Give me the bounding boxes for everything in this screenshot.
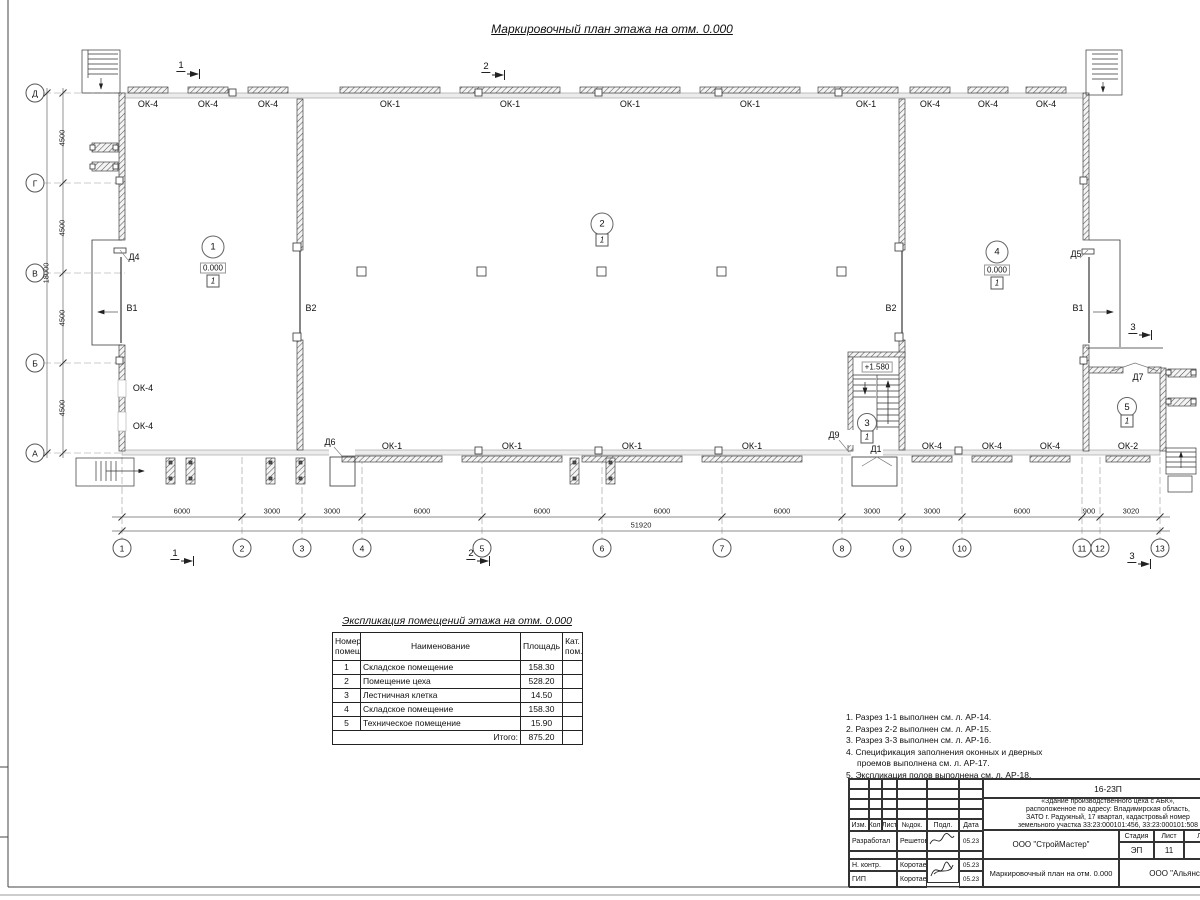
note-item: 2. Разрез 2-2 выполнен см. л. АР-15. [846,724,1076,736]
section-mark-1-top: 1 [176,60,185,72]
tb-name: Решетова [897,831,927,851]
notes-list: 1. Разрез 1-1 выполнен см. л. АР-14. 2. … [846,712,1076,781]
tb-project-description: «Здание производственного цеха с АБК», р… [983,798,1200,830]
axis-bubble-h-2: 2 [233,539,252,558]
door-label-d7: Д7 [1132,372,1143,382]
window-label: ОК-4 [133,383,153,393]
note-item: 3. Разрез 3-3 выполнен см. л. АР-16. [846,735,1076,747]
dim-text: 6000 [174,507,191,516]
note-item: 1. Разрез 1-1 выполнен см. л. АР-14. [846,712,1076,724]
axis-bubble-h-12: 12 [1091,539,1110,558]
room-num: 4 [333,703,361,717]
room-4-elevation: 0.000 [984,265,1010,276]
axis-lines [44,93,1160,540]
window-label: ОК-4 [138,99,158,109]
room-area: 158.30 [521,661,563,675]
section-mark-3-top: 3 [1128,322,1137,334]
door-label-d4: Д4 [128,252,139,262]
tb-sheet-label: Лист [1154,830,1184,842]
room-1-elevation: 0.000 [200,263,226,274]
window-label: ОК-1 [380,99,400,109]
note-item: 4. Спецификация заполнения оконных и две… [846,747,1076,770]
room-2-number: 2 [591,213,614,236]
axis-bubble-h-5: 5 [473,539,492,558]
table-row: 3 Лестничная клетка 14.50 [333,689,583,703]
section-mark-3-bottom: 3 [1127,551,1136,563]
tb-drawing-title: Маркировочный план на отм. 0.000 [983,859,1119,888]
tb-stage-label: Стадия [1119,830,1154,842]
tb-col-izm: Изм. [849,819,869,831]
tb-stage-value: ЭП [1119,842,1154,859]
tb-role: Разработал [849,831,897,851]
window-label: ОК-1 [500,99,520,109]
room-area: 158.30 [521,703,563,717]
room-name: Складское помещение [361,661,521,675]
tb-name: Коротаев [897,871,927,888]
tb-name: Коротаев [897,859,927,871]
door-label-d9: Д9 [828,430,839,440]
tb-sheets-value: 1 [1184,842,1200,859]
room-cat [563,675,583,689]
total-area: 875.20 [521,731,563,745]
tb-date: 05.23 [959,871,983,888]
dim-text: 4500 [58,310,67,327]
door-label-d6: Д6 [324,437,335,447]
window-label: ОК-1 [382,441,402,451]
room-name: Складское помещение [361,703,521,717]
tb-signature [927,859,959,883]
window-label: ОК-4 [978,99,998,109]
window-label: ОК-2 [1118,441,1138,451]
room-num: 2 [333,675,361,689]
room-schedule: Экспликация помещений этажа на отм. 0.00… [332,615,582,745]
axis-bubble-h-6: 6 [593,539,612,558]
tb-col-data: Дата [959,819,983,831]
dim-text: 3000 [324,507,341,516]
window-label: ОК-4 [198,99,218,109]
table-row: 2 Помещение цеха 528.20 [333,675,583,689]
columns [90,89,1196,480]
dim-text: 6000 [534,507,551,516]
col-header-number: Номер помещ. [333,633,361,661]
room-area: 14.50 [521,689,563,703]
window-label: ОК-1 [502,441,522,451]
title-block: Изм. Кол. Лист №док. Подл. Дата Разработ… [848,778,1200,887]
table-row: 4 Складское помещение 158.30 [333,703,583,717]
window-label: ОК-1 [620,99,640,109]
tb-date: 05.23 [959,859,983,871]
door-label-d5: Д5 [1070,249,1081,259]
section-mark-1-bottom: 1 [170,548,179,560]
room-4-floor-type: 1 [991,277,1004,290]
tb-sheets-label: Листов [1184,830,1200,842]
tb-role: Н. контр. [849,859,897,871]
door-label-d1: Д1 [870,444,881,454]
section-arrows [181,69,1152,569]
dim-text: 4500 [58,130,67,147]
dim-text: 6000 [1014,507,1031,516]
axis-bubble-v-d: Д [26,84,45,103]
walls-hatched [92,87,1196,484]
col-header-area: Площадь [521,633,563,661]
window-label: ОК-1 [742,441,762,451]
window-label: ОК-4 [1036,99,1056,109]
room-name: Лестничная клетка [361,689,521,703]
window-label: ОК-1 [622,441,642,451]
tb-client: ООО "Альянс" [1119,859,1200,888]
total-label: Итого: [333,731,521,745]
tb-col-list: Лист [882,819,897,831]
section-mark-2-top: 2 [481,61,490,73]
room-schedule-title: Экспликация помещений этажа на отм. 0.00… [332,615,582,627]
table-row: 1 Складское помещение 158.30 [333,661,583,675]
window-label: ОК-4 [258,99,278,109]
axis-bubble-h-9: 9 [893,539,912,558]
axis-bubble-h-8: 8 [833,539,852,558]
dim-text: 6000 [654,507,671,516]
table-row: 5 Техническое помещение 15.90 [333,717,583,731]
window-label: ОК-1 [740,99,760,109]
dim-total-width: 51920 [631,521,652,530]
stair-landing-elevation: +1.580 [862,362,893,373]
room-2-floor-type: 1 [596,234,609,247]
dim-text: 6000 [774,507,791,516]
col-header-category: Кат. пом. [563,633,583,661]
gate-label-b2-right: В2 [885,303,896,313]
axis-bubble-h-7: 7 [713,539,732,558]
axis-bubble-h-3: 3 [293,539,312,558]
tb-role: ГИП [849,871,897,888]
room-num: 3 [333,689,361,703]
drawing-sheet: Маркировочный план этажа на отм. 0.000 О… [0,0,1200,900]
table-total-row: Итого: 875.20 [333,731,583,745]
gate-label-b1-left: В1 [126,303,137,313]
window-label: ОК-4 [920,99,940,109]
axis-bubble-h-4: 4 [353,539,372,558]
room-cat [563,689,583,703]
window-label: ОК-4 [1040,441,1060,451]
dimension-ticks [44,90,1164,535]
room-name: Помещение цеха [361,675,521,689]
room-5-floor-type: 1 [1121,415,1134,428]
window-label: ОК-1 [856,99,876,109]
tb-date: 05.23 [959,831,983,851]
axis-bubble-v-v: В [26,264,45,283]
dim-text: 3000 [924,507,941,516]
room-1-floor-type: 1 [207,275,220,288]
tb-signature [927,831,959,851]
room-num: 1 [333,661,361,675]
tb-sheet-value: 11 [1154,842,1184,859]
axis-bubble-h-13: 13 [1151,539,1170,558]
room-num: 5 [333,717,361,731]
tb-org: ООО "СтройМастер" [983,830,1119,859]
room-1-number: 1 [202,236,225,259]
tb-col-podp: Подл. [927,819,959,831]
window-label: ОК-4 [982,441,1002,451]
room-cat [563,661,583,675]
axis-bubble-h-1: 1 [113,539,132,558]
tb-col-ndok: №док. [897,819,927,831]
gate-label-b2-left: В2 [305,303,316,313]
axis-bubble-h-11: 11 [1073,539,1092,558]
col-header-name: Наименование [361,633,521,661]
window-label: ОК-4 [133,421,153,431]
axis-bubble-v-b: Б [26,354,45,373]
room-cat [563,717,583,731]
room-area: 15.90 [521,717,563,731]
dim-text: 6000 [414,507,431,516]
tb-col-kol: Кол. [869,819,882,831]
room-name: Техническое помещение [361,717,521,731]
axis-bubble-h-10: 10 [953,539,972,558]
dim-text: 3000 [264,507,281,516]
tb-doc-number: 16-23П [983,779,1200,798]
axis-bubble-v-a: А [26,444,45,463]
room-area: 528.20 [521,675,563,689]
gate-label-b1-right: В1 [1072,303,1083,313]
window-label: ОК-4 [922,441,942,451]
room-3-floor-type: 1 [861,431,874,444]
axis-bubble-v-g: Г [26,174,45,193]
dim-text: 900 [1083,507,1096,516]
dim-text: 3020 [1123,507,1140,516]
page-title: Маркировочный план этажа на отм. 0.000 [491,22,733,36]
dim-text: 4500 [58,400,67,417]
room-4-number: 4 [986,241,1009,264]
table-header-row: Номер помещ. Наименование Площадь Кат. п… [333,633,583,661]
dim-text: 3000 [864,507,881,516]
room-cat [563,703,583,717]
exterior-stairs [76,50,1196,492]
dim-text: 4500 [58,220,67,237]
